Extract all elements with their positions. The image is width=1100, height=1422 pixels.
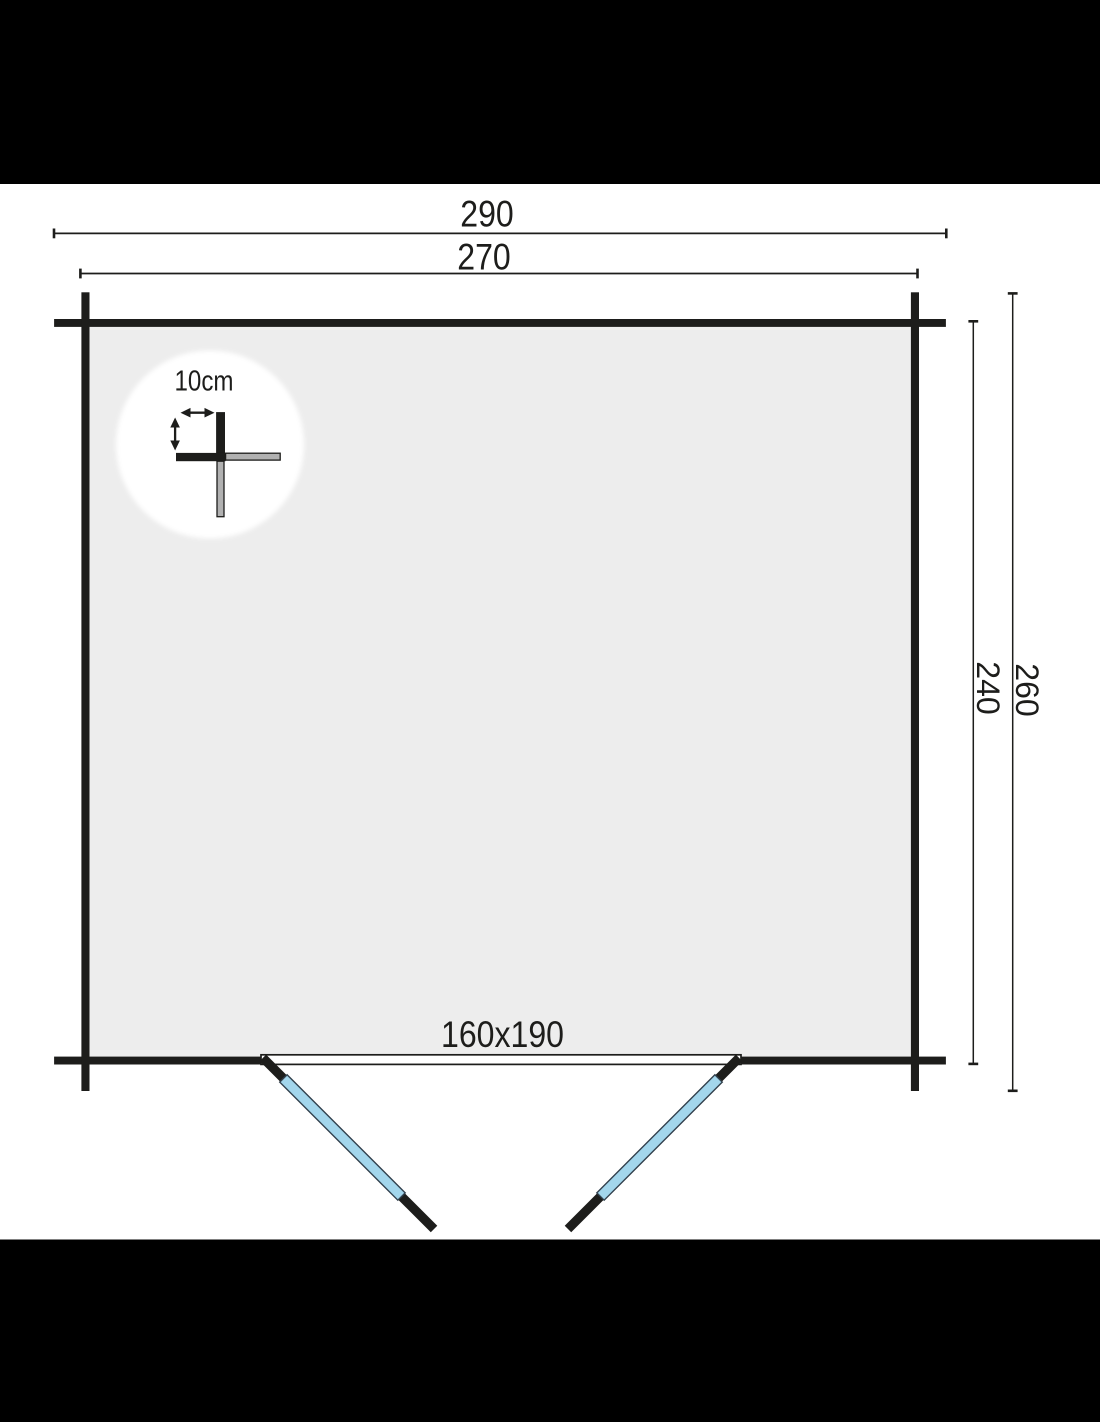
svg-text:240: 240 bbox=[970, 661, 1006, 715]
svg-text:290: 290 bbox=[460, 194, 514, 235]
svg-text:10cm: 10cm bbox=[175, 366, 234, 398]
svg-text:160x190: 160x190 bbox=[441, 1014, 564, 1055]
svg-text:260: 260 bbox=[1009, 663, 1045, 717]
svg-text:270: 270 bbox=[457, 237, 511, 278]
